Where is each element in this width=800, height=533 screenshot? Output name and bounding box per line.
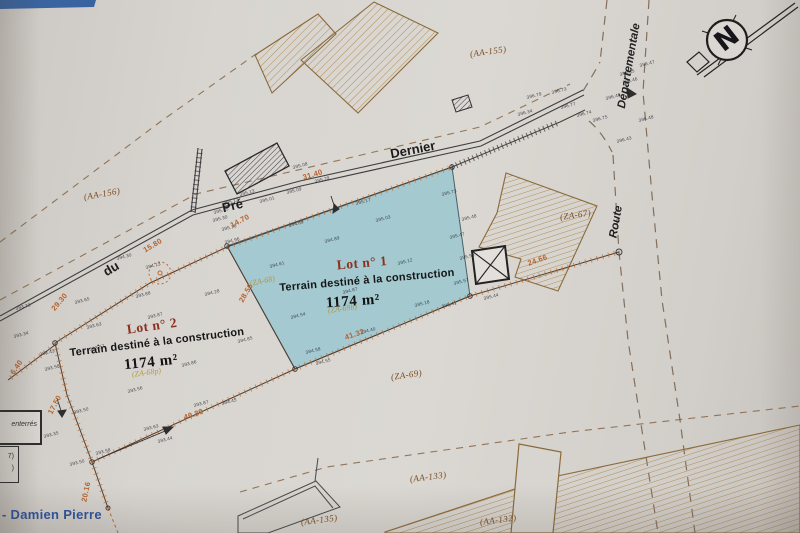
old-parcel-ref-label: (ZA-69b) <box>327 303 357 315</box>
dimension-label: 6.40 <box>9 359 24 376</box>
survey-point-label: 395.50 <box>459 253 475 261</box>
legend-box-buried-networks: enterrés <box>0 410 42 445</box>
survey-point-label: 395.48 <box>461 214 477 222</box>
dimension-label: 41.32 <box>344 328 366 342</box>
survey-point-label: 394.28 <box>204 289 220 297</box>
parcel-ref-label: (AA-132) <box>479 514 517 527</box>
dimension-label: 15.80 <box>142 237 163 254</box>
parcel-ref-label: (AA-133) <box>409 471 447 484</box>
survey-point-label: 395.44 <box>483 293 499 301</box>
legend-note-line1: 7) <box>8 453 14 460</box>
survey-point-label: 393.58 <box>44 364 60 372</box>
legend-note-line2: ) <box>12 465 14 472</box>
survey-point-label: 395.18 <box>414 300 430 308</box>
dimension-label: 29.30 <box>50 292 69 312</box>
survey-point-label: 395.12 <box>397 258 413 266</box>
survey-point-label: 393.56 <box>127 386 143 394</box>
survey-point-label: 396.34 <box>517 109 533 117</box>
survey-point-label: 396.74 <box>576 110 592 118</box>
route-name-route: Route <box>609 205 626 239</box>
legend-box-text: enterrés <box>11 421 37 428</box>
survey-point-label: 396.75 <box>592 115 608 123</box>
survey-point-label: 394.89 <box>324 236 340 244</box>
surveyor-credit: - Damien Pierre <box>2 508 102 521</box>
survey-point-label: 393.35 <box>43 431 59 439</box>
survey-point-label: 393.58 <box>95 448 111 456</box>
survey-point-label: 395.73 <box>441 189 457 197</box>
survey-point-label: 395.13 <box>239 189 255 197</box>
survey-point-label: 395.30 <box>212 215 228 223</box>
lot1-title: Lot n° 1 <box>336 254 388 272</box>
survey-point-label: 395.03 <box>375 215 391 223</box>
survey-point-label: 396.77 <box>560 102 576 110</box>
old-parcel-ref-label: (ZA-68p) <box>131 367 161 379</box>
dimension-label: 20.16 <box>80 481 92 502</box>
survey-point-label: 396.47 <box>639 60 655 68</box>
survey-point-label: 393.63 <box>143 424 159 432</box>
compass-north-letter: N <box>710 21 744 56</box>
survey-point-label: 395.08 <box>292 162 308 170</box>
survey-point-label: 394.96 <box>224 237 240 245</box>
parcel-ref-label: (AA-135) <box>300 514 338 527</box>
survey-point-label: 394.13 <box>145 262 161 270</box>
survey-point-label: 393.44 <box>157 436 173 444</box>
survey-point-label: 395.09 <box>286 187 302 195</box>
survey-point-label: 394.58 <box>305 347 321 355</box>
survey-point-label: 394.30 <box>116 253 132 261</box>
plan-labels: du Pré Dernier Route Départementale Lot … <box>0 0 800 533</box>
parcel-ref-label: (ZA-69) <box>390 369 422 382</box>
survey-point-label: 395.41 <box>441 301 457 309</box>
dimension-label: 40.39 <box>183 408 205 422</box>
dimension-label: 14.70 <box>229 213 250 229</box>
survey-point-label: 395.47 <box>449 232 465 240</box>
survey-point-label: 396.73 <box>551 87 567 95</box>
survey-point-label: 393.73 <box>15 303 31 311</box>
lot1-subtitle: Terrain destiné à la construction <box>279 268 455 294</box>
parcel-ref-label: (ZA-67) <box>559 209 591 222</box>
dimension-label: 24.66 <box>527 253 549 267</box>
survey-point-label: 394.55 <box>315 358 331 366</box>
survey-point-label: 393.88 <box>135 291 151 299</box>
dimension-label: 17.50 <box>47 394 63 415</box>
street-name-dernier: Dernier <box>389 139 436 160</box>
survey-point-label: 393.86 <box>181 360 197 368</box>
survey-point-label: 396.79 <box>526 92 542 100</box>
survey-point-label: 393.34 <box>13 331 29 339</box>
survey-point-label: 395.01 <box>259 196 275 204</box>
cadastral-plan-photo: du Pré Dernier Route Départementale Lot … <box>0 0 800 533</box>
survey-point-label: 393.50 <box>69 459 85 467</box>
legend-box-notes: 7) ) <box>0 446 19 483</box>
old-parcel-ref-label: (ZA-68) <box>249 275 275 288</box>
survey-point-label: 393.63 <box>86 322 102 330</box>
survey-point-label: 394.54 <box>290 312 306 320</box>
street-name-du: du <box>101 259 121 278</box>
parcel-ref-label: (AA-155) <box>469 45 507 59</box>
survey-point-label: 394.89 <box>288 220 304 228</box>
survey-point-label: 393.50 <box>73 407 89 415</box>
survey-point-label: 393.65 <box>74 297 90 305</box>
survey-point-label: 393.43 <box>39 349 55 357</box>
survey-point-label: 395.57 <box>453 278 469 286</box>
survey-point-label: 394.45 <box>221 398 237 406</box>
survey-point-label: 395.17 <box>355 198 371 206</box>
survey-point-label: 394.85 <box>237 336 253 344</box>
survey-point-label: 396.48 <box>638 115 654 123</box>
survey-point-label: 396.43 <box>616 136 632 144</box>
survey-point-label: 394.61 <box>269 261 285 269</box>
parcel-ref-label: (AA-156) <box>83 187 121 202</box>
